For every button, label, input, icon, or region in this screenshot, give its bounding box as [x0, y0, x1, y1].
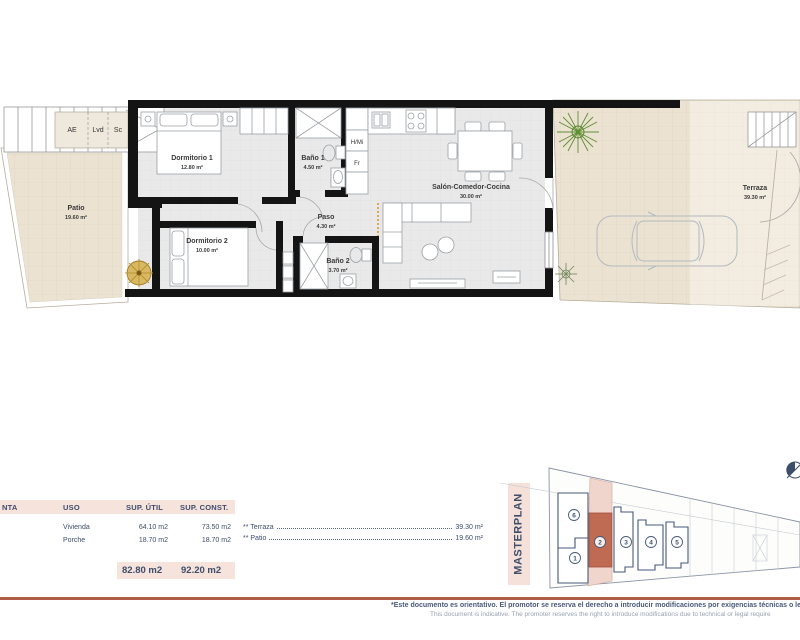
floorplan-drawing: AE Lvd Sc: [0, 0, 800, 460]
room-label-dormitorio1: Dormitorio 1: [171, 155, 213, 162]
dotted-leader: [269, 533, 452, 540]
appliance-column: [346, 108, 368, 194]
closet-label-lvd: Lvd: [92, 127, 103, 134]
dotted-leader: [277, 522, 453, 529]
note-patio: ** Patio 19.60 m²: [243, 533, 483, 542]
table-row-uso: Porche: [63, 537, 85, 544]
room-label-bano1: Baño 1: [301, 155, 324, 162]
room-label-paso: Paso: [318, 214, 335, 221]
room-area-paso: 4.30 m²: [317, 223, 336, 230]
tree-small: [555, 263, 577, 285]
table-header-sup-const: SUP. CONST.: [180, 503, 228, 512]
total-sup-util: 82.80 m2: [122, 565, 162, 576]
footer-accent-bar: [0, 597, 800, 600]
kitchen-counter: [368, 108, 455, 134]
closet-strip: AE Lvd Sc: [55, 112, 128, 148]
room-area-bano2: 3.70 m²: [329, 267, 348, 274]
note-value: 19.60 m²: [455, 535, 483, 542]
disclaimer-es: *Este documento es orientativo. El promo…: [391, 602, 800, 609]
room-label-bano2: Baño 2: [326, 258, 349, 265]
unit-number-1: 1: [573, 556, 577, 563]
unit-number-6: 6: [572, 513, 576, 520]
room-area-patio: 19.60 m²: [65, 214, 87, 221]
table-row-const: 73.50 m2: [183, 524, 231, 531]
unit-number-2: 2: [598, 540, 602, 547]
note-value: 39.30 m²: [455, 524, 483, 531]
closet-label-sc: Sc: [114, 127, 123, 134]
patio-floor: [1, 148, 128, 308]
unit2-highlight: [588, 478, 612, 586]
unit-number-3: 3: [624, 540, 628, 547]
appliance-label-fr: Fr: [354, 161, 360, 167]
room-area-bano1: 4.50 m²: [304, 164, 323, 171]
room-area-salon: 30.00 m²: [460, 193, 482, 200]
room-area-dormitorio1: 12.80 m²: [181, 164, 203, 171]
table-row-const: 18.70 m2: [183, 537, 231, 544]
note-terraza: ** Terraza 39.30 m²: [243, 522, 483, 531]
total-sup-const: 92.20 m2: [181, 565, 221, 576]
room-label-terraza: Terraza: [743, 185, 767, 192]
tree-large: [557, 111, 599, 153]
table-header-planta: NTA: [2, 503, 17, 512]
exterior-stairs-right: [748, 112, 796, 147]
closet-label-ae: AE: [67, 127, 77, 134]
disclaimer-en: This document is indicative. The promote…: [430, 611, 771, 618]
unit-number-4: 4: [649, 540, 653, 547]
room-label-salon: Salón-Comedor-Cocina: [432, 184, 510, 191]
room-area-terraza: 39.30 m²: [744, 194, 766, 201]
table-row-util: 64.10 m2: [120, 524, 168, 531]
room-area-dormitorio2: 10.00 m²: [196, 247, 218, 254]
compass-icon: [786, 462, 800, 478]
table-header-sup-util: SUP. ÚTIL: [126, 503, 163, 512]
window-salon: [545, 232, 553, 268]
unit-number-5: 5: [675, 540, 679, 547]
room-label-dormitorio2: Dormitorio 2: [186, 238, 228, 245]
floorplan-sheet: AE Lvd Sc: [0, 0, 800, 640]
note-label: ** Patio: [243, 535, 266, 542]
palm-tree: [125, 259, 153, 287]
table-header-uso: USO: [63, 503, 80, 512]
room-label-patio: Patio: [67, 205, 84, 212]
table-row-uso: Vivienda: [63, 524, 90, 531]
masterplan-map: 6 1 2 3 4 5: [500, 455, 800, 600]
note-label: ** Terraza: [243, 524, 274, 531]
table-row-util: 18.70 m2: [120, 537, 168, 544]
appliance-label-hmi: H/Mi: [351, 140, 363, 146]
